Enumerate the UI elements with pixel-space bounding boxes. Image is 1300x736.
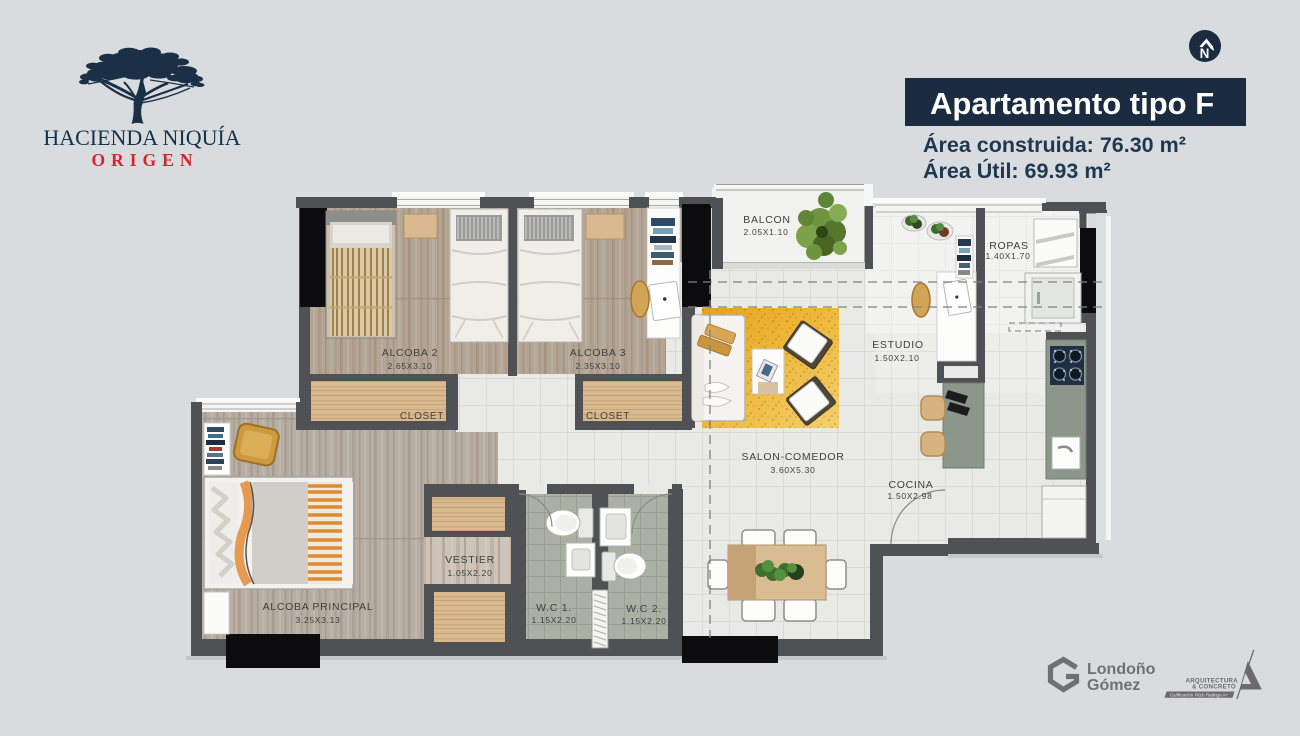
svg-text:ESTUDIO: ESTUDIO [872,339,924,351]
svg-text:& CONCRETO: & CONCRETO [1192,684,1236,691]
svg-text:Área Útil: 69.93 m²: Área Útil: 69.93 m² [923,158,1111,183]
svg-text:Área construida: 76.30 m²: Área construida: 76.30 m² [923,132,1186,157]
svg-text:VESTIER: VESTIER [445,554,495,566]
svg-text:SALON-COMEDOR: SALON-COMEDOR [741,451,844,463]
svg-text:ALCOBA 3: ALCOBA 3 [570,347,626,359]
svg-text:W.C 1.: W.C 1. [536,602,572,614]
svg-text:1.50X2.98: 1.50X2.98 [887,491,932,501]
svg-text:1.40X1.70: 1.40X1.70 [985,251,1030,261]
svg-text:3.25X3.13: 3.25X3.13 [295,615,340,625]
svg-text:Calificación Fitch Ratings A+: Calificación Fitch Ratings A+ [1170,693,1229,698]
svg-text:1.15X2.20: 1.15X2.20 [621,616,666,626]
svg-text:3.60X5.30: 3.60X5.30 [770,465,815,475]
svg-text:HACIENDA NIQUÍA: HACIENDA NIQUÍA [43,125,240,150]
svg-text:Apartamento tipo F: Apartamento tipo F [930,86,1214,121]
svg-text:ORIGEN: ORIGEN [92,150,199,170]
svg-text:W.C 2.: W.C 2. [626,603,662,615]
svg-text:Gómez: Gómez [1087,677,1140,694]
svg-text:Londoño: Londoño [1087,661,1156,678]
svg-text:2.35X3.10: 2.35X3.10 [575,361,620,371]
svg-text:1.15X2.20: 1.15X2.20 [531,615,576,625]
svg-text:1.50X2.10: 1.50X2.10 [874,353,919,363]
svg-text:ALCOBA PRINCIPAL: ALCOBA PRINCIPAL [263,601,374,613]
svg-text:CLOSET: CLOSET [586,411,630,422]
svg-text:N: N [1200,46,1210,61]
svg-text:BALCON: BALCON [743,214,790,226]
svg-text:2.05X1.10: 2.05X1.10 [743,227,788,237]
svg-text:2.65X3.10: 2.65X3.10 [387,361,432,371]
svg-text:1.05X2.20: 1.05X2.20 [447,568,492,578]
svg-text:ALCOBA 2: ALCOBA 2 [382,347,438,359]
svg-text:CLOSET: CLOSET [400,411,444,422]
svg-text:COCINA: COCINA [888,479,933,491]
